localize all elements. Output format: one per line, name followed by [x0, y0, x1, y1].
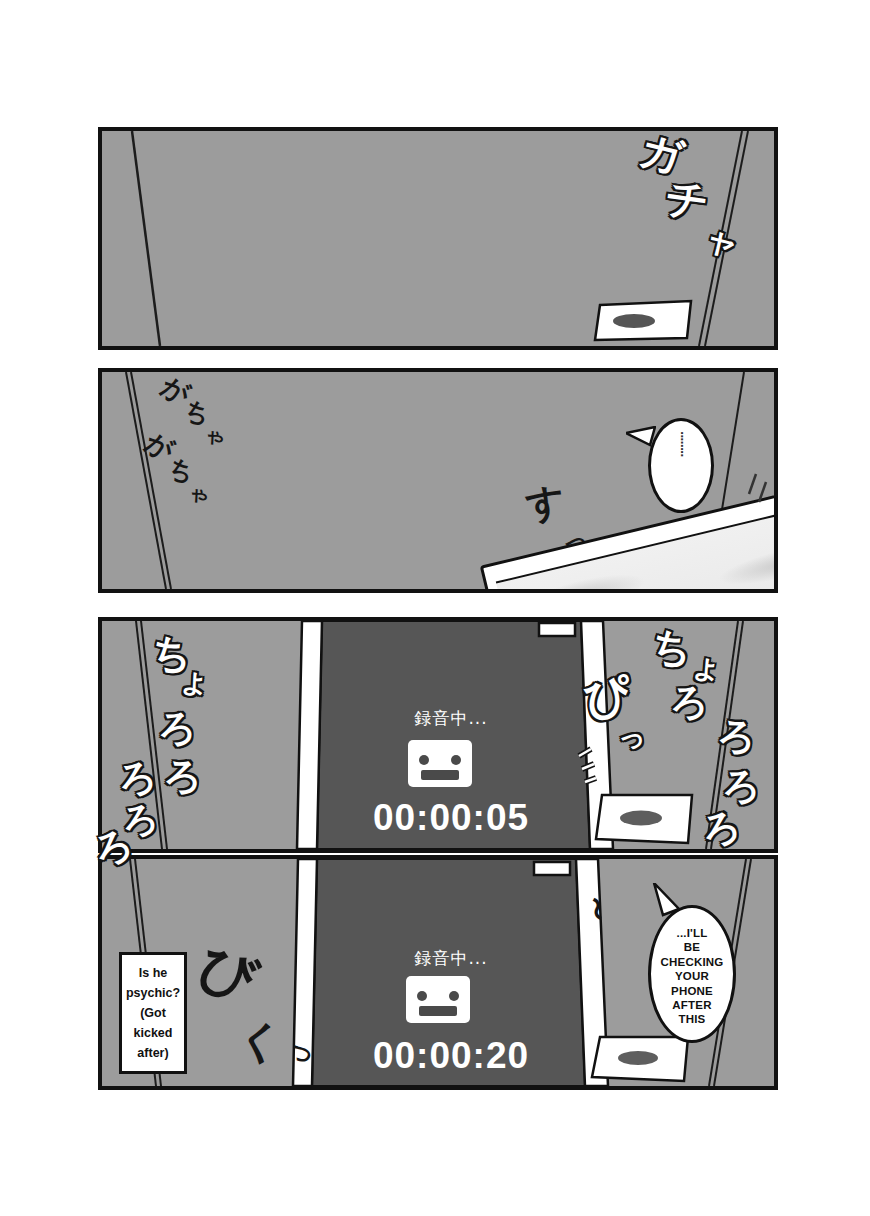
ceiling-light-oval — [620, 811, 662, 826]
sfx-door-open-char: チ — [663, 176, 711, 224]
speech-bubble: ...I'LL BE CHECKING YOUR PHONE AFTER THI… — [648, 905, 736, 1043]
ceiling-light-oval — [613, 314, 655, 328]
phone-bezel-left — [297, 621, 322, 849]
panel-1: ガ チ ャ — [98, 127, 778, 350]
sfx-beep-char: っ — [617, 722, 647, 752]
sfx-trickle-char: ろ — [670, 683, 709, 721]
panel-3: 録音中... 00:00:05 ち ょ ろ ろ ろ ぴ っ ち ょ ろ ろ ろ … — [98, 617, 778, 853]
sfx-trickle-char: ろ — [722, 767, 761, 805]
cassette-reel-right — [449, 991, 459, 1001]
wall-corner-line-left — [132, 131, 160, 346]
sfx-trickle-char: ょ — [176, 663, 212, 698]
recorder-timer: 00:00:20 — [340, 1035, 562, 1077]
motion-lines — [744, 472, 772, 516]
thought-bubble-dots: ········ — [676, 431, 687, 456]
sfx-tremble-mark: 〜 — [582, 895, 610, 923]
cassette-icon — [406, 976, 470, 1023]
speech-bubble-text: ...I'LL BE CHECKING YOUR PHONE AFTER THI… — [651, 926, 733, 1027]
sfx-trickle-char: ろ — [715, 714, 760, 758]
panel-4: 録音中... 00:00:20 Is he psychic? (Got kick… — [98, 855, 778, 1090]
recorder-status-text: 録音中... — [340, 947, 562, 970]
manga-page: ガ チ ャ が ち ゃ が ち ゃ す っ — [0, 0, 870, 1216]
cassette-window — [419, 1006, 457, 1016]
translator-caption-box: Is he psychic? (Got kicked after) — [119, 952, 187, 1074]
panel-2: が ち ゃ が ち ゃ す っ — [98, 368, 778, 593]
recorder-status-text: 録音中... — [340, 707, 562, 730]
cassette-reel-left — [417, 991, 427, 1001]
cassette-window — [421, 770, 459, 780]
cassette-icon — [408, 740, 472, 787]
ceiling-light-oval — [618, 1051, 658, 1065]
sfx-trickle-char: ろ — [116, 756, 160, 799]
sfx-trickle-char: ろ — [158, 709, 197, 747]
sfx-trickle-char: ろ — [162, 755, 205, 797]
thought-bubble: ········ — [648, 418, 714, 513]
phone-camera-cutout — [534, 862, 570, 875]
sfx-flinch-char: く — [234, 1015, 287, 1067]
sfx-trickle-char: ろ — [699, 806, 744, 850]
wall-corner-line-left — [126, 372, 166, 589]
wall-corner-line-left-2 — [131, 372, 171, 589]
wall-corner-line-right — [720, 372, 744, 522]
sfx-beep-char: ぴ — [580, 669, 636, 724]
recorder-timer: 00:00:05 — [340, 797, 562, 839]
cassette-reel-left — [419, 755, 429, 765]
cassette-reel-right — [451, 755, 461, 765]
phone-camera-cutout — [539, 623, 575, 636]
sfx-slide-char: す — [524, 481, 568, 524]
